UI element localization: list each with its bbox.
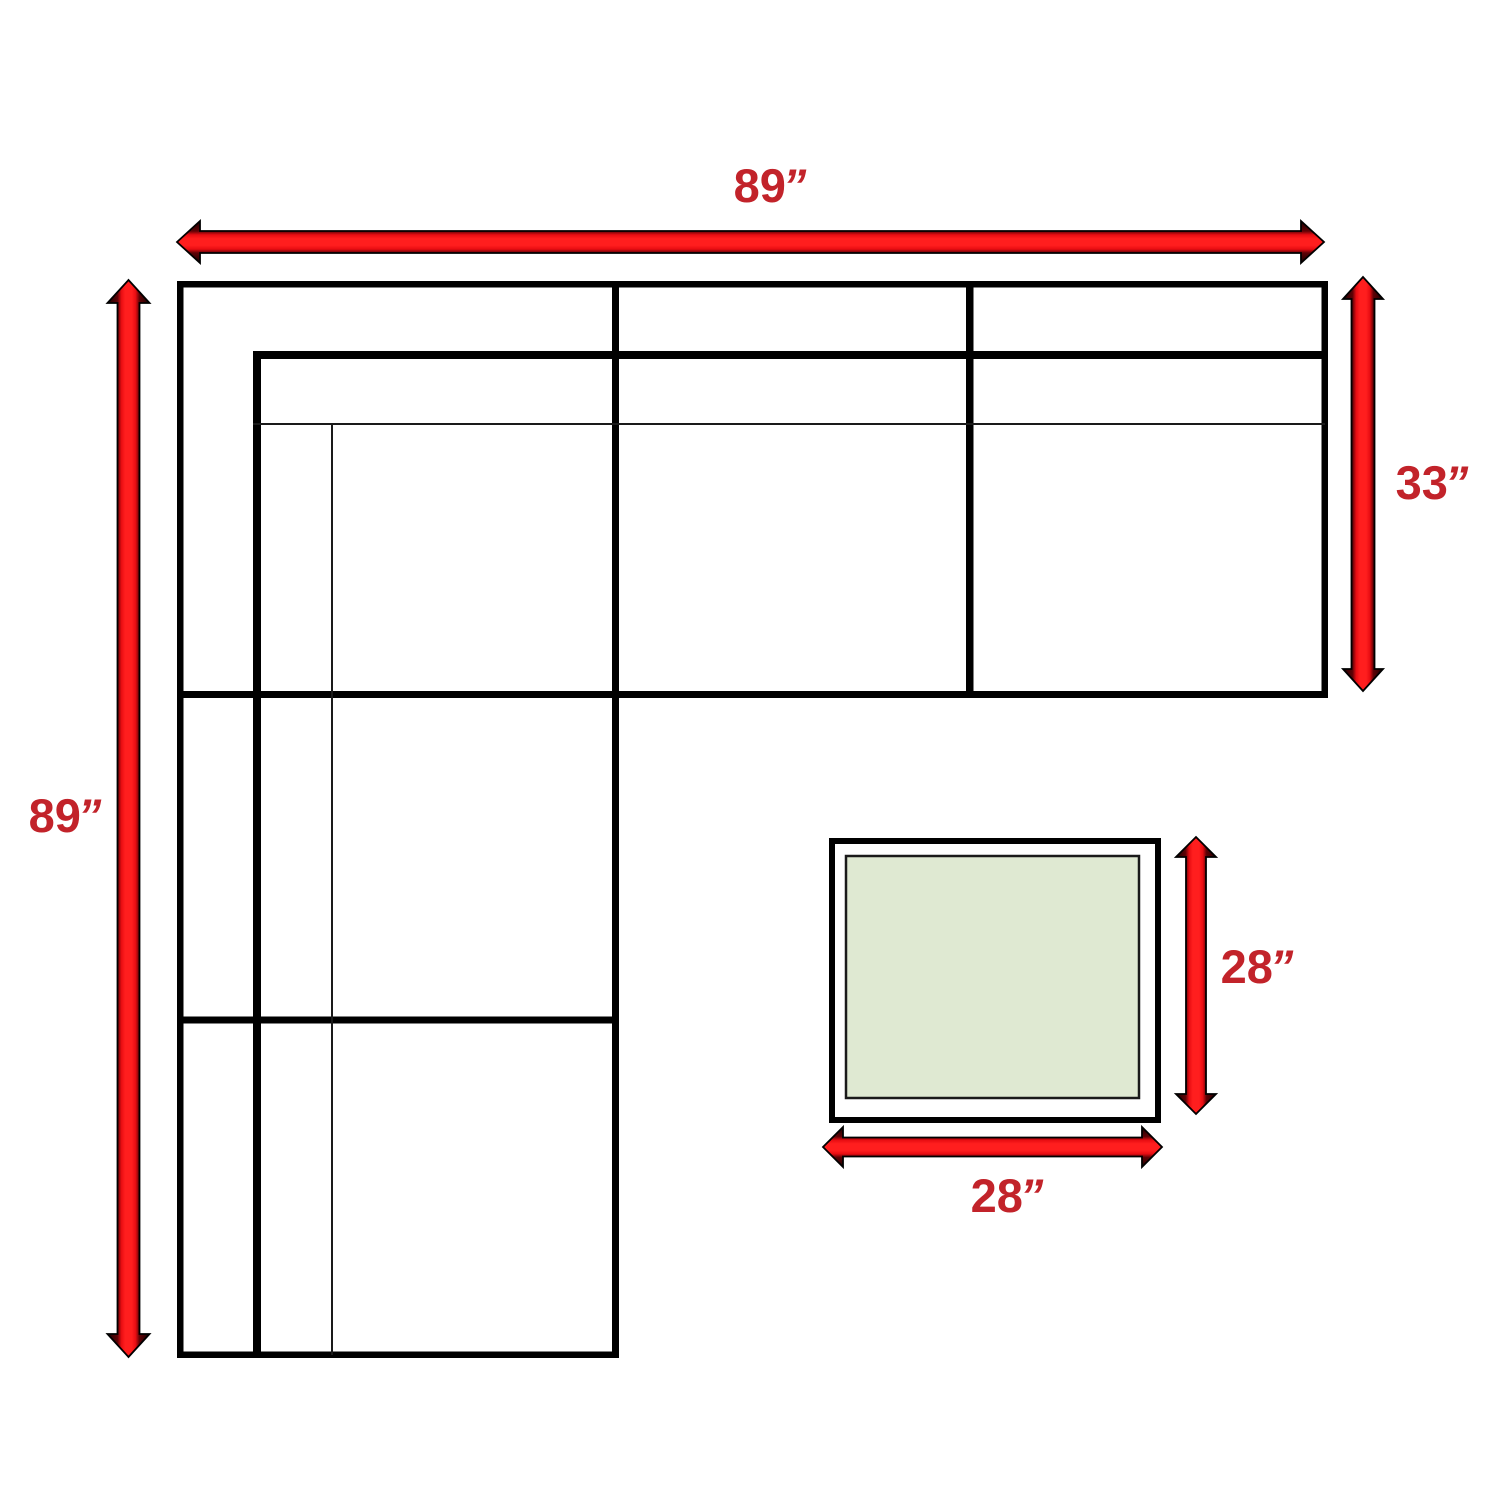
- svg-text:89”: 89”: [29, 789, 102, 842]
- svg-text:28”: 28”: [1221, 940, 1294, 993]
- svg-text:33”: 33”: [1396, 456, 1469, 509]
- svg-text:28”: 28”: [971, 1169, 1044, 1222]
- svg-text:89”: 89”: [734, 159, 807, 212]
